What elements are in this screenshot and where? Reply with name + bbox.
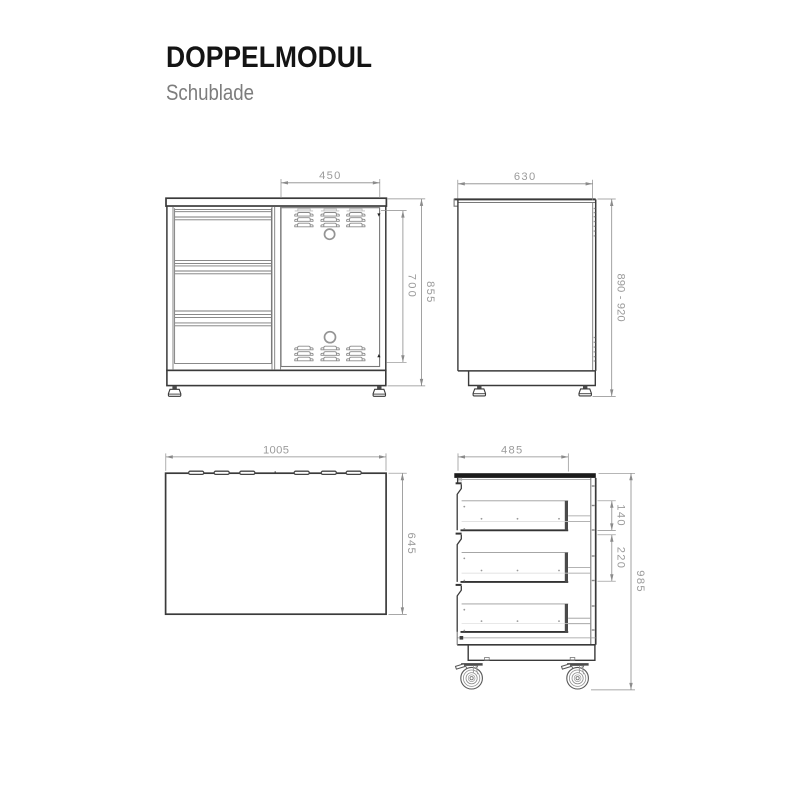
svg-text:Schublade: Schublade xyxy=(166,80,254,105)
svg-text:890 - 920: 890 - 920 xyxy=(615,274,627,322)
svg-text:855: 855 xyxy=(424,281,436,304)
svg-text:1005: 1005 xyxy=(263,444,290,456)
svg-text:220: 220 xyxy=(614,547,626,570)
svg-text:DOPPELMODUL: DOPPELMODUL xyxy=(166,41,372,74)
svg-text:985: 985 xyxy=(634,570,646,593)
svg-text:450: 450 xyxy=(319,170,342,182)
svg-text:700: 700 xyxy=(405,274,417,299)
svg-text:485: 485 xyxy=(501,444,524,456)
svg-text:645: 645 xyxy=(405,533,417,556)
svg-text:630: 630 xyxy=(514,171,537,183)
svg-text:140: 140 xyxy=(614,504,626,527)
